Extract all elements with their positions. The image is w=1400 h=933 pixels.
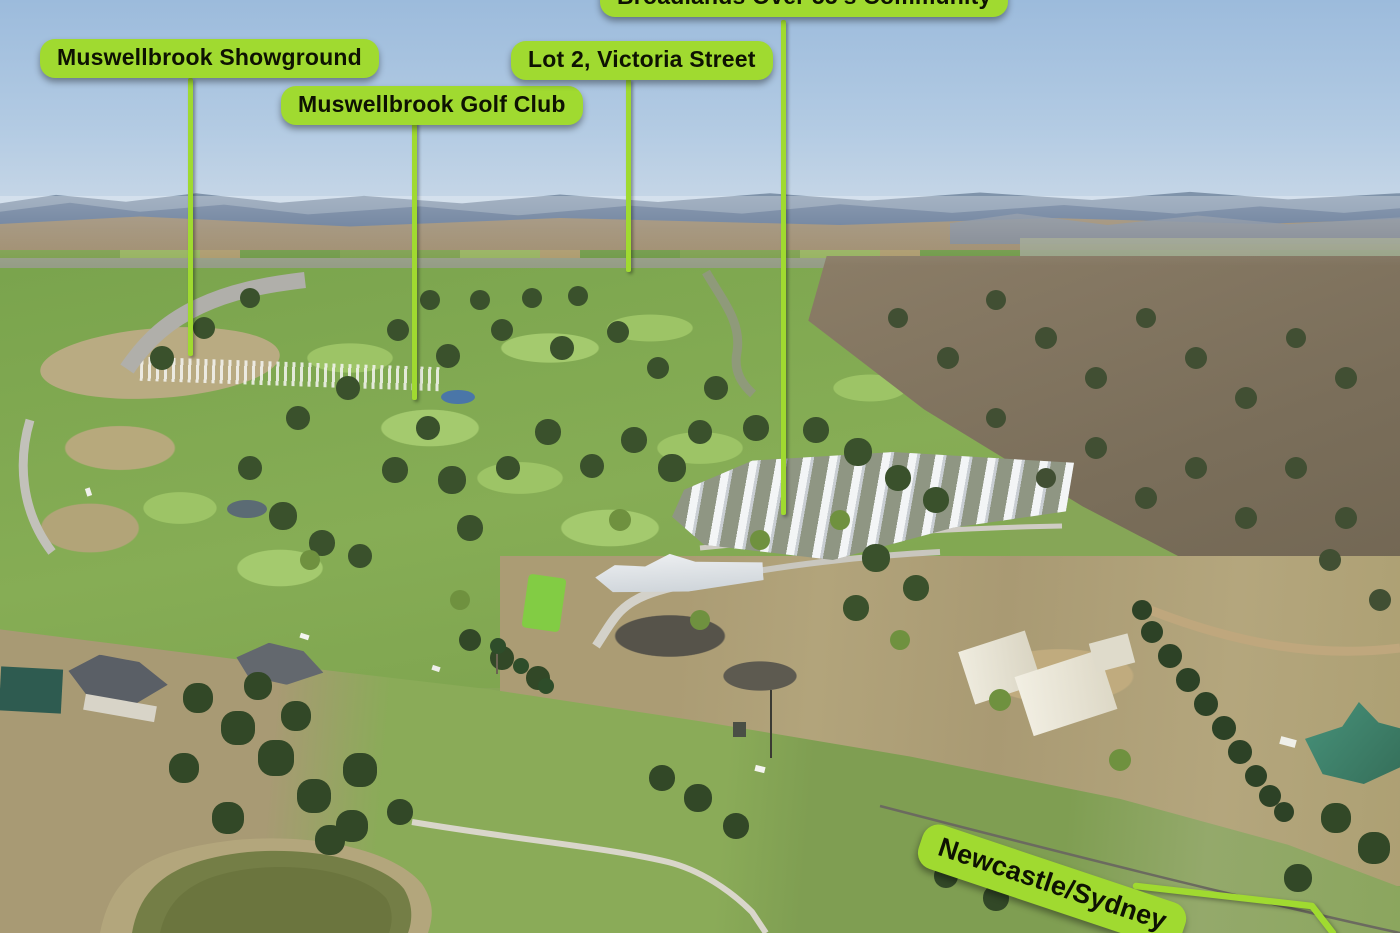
sky bbox=[0, 0, 1400, 215]
callout-muswellbrook-showground: Muswellbrook Showground bbox=[40, 39, 379, 78]
palm-tree-1 bbox=[496, 648, 498, 674]
pump-shed bbox=[733, 722, 746, 737]
aerial-photo: Muswellbrook Showground Muswellbrook Gol… bbox=[0, 0, 1400, 933]
teal-shed bbox=[0, 666, 63, 713]
power-pole bbox=[770, 690, 772, 758]
horizon-haze bbox=[0, 196, 1400, 266]
callout-muswellbrook-golf-club: Muswellbrook Golf Club bbox=[281, 86, 583, 125]
pin-showground-line bbox=[188, 78, 193, 356]
pin-golf-club-line bbox=[412, 121, 417, 400]
callout-broadlands-community: Broadlands Over 55's Community bbox=[600, 0, 1008, 17]
pin-lot2-line bbox=[626, 79, 631, 272]
pin-broadlands-line bbox=[781, 20, 786, 515]
bowling-green bbox=[521, 574, 566, 633]
callout-lot2-victoria-street: Lot 2, Victoria Street bbox=[511, 41, 773, 80]
